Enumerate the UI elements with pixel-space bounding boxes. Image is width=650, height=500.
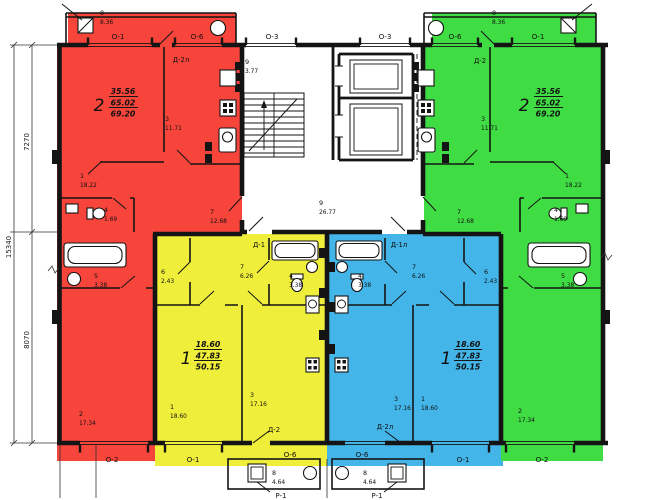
door-label: Д-1л bbox=[391, 241, 407, 249]
balcony-vent-circle bbox=[211, 21, 226, 36]
apt-total-area: 65.02 bbox=[111, 99, 136, 108]
room-area: 17.16 bbox=[394, 406, 411, 412]
room-area: 8.36 bbox=[492, 20, 505, 26]
counter-sink-icon bbox=[306, 296, 319, 313]
window-label: О-3 bbox=[379, 32, 392, 41]
room-num: 2 bbox=[79, 410, 83, 418]
room-num: 1 bbox=[565, 172, 569, 180]
porch-panel-label: Р-1 bbox=[372, 492, 383, 500]
apt-living-area: 35.56 bbox=[536, 87, 561, 96]
window-label: О-1 bbox=[532, 32, 545, 41]
room-num: 4 bbox=[358, 272, 362, 280]
room-num: 1 bbox=[170, 403, 174, 411]
floor-plan-canvas: 7270 8070 15340 О-1 О-6 О-3 О-3 О-6 О-1 … bbox=[0, 0, 650, 500]
room-num: 1 bbox=[80, 172, 84, 180]
sink-icon bbox=[66, 204, 78, 213]
door-label: Д-2л bbox=[173, 56, 189, 64]
apt-total-area: 47.83 bbox=[196, 352, 221, 361]
room-area: 12.68 bbox=[457, 219, 474, 225]
window-label: О-3 bbox=[266, 32, 279, 41]
room-area: 1.69 bbox=[554, 217, 567, 223]
room-area: 8.36 bbox=[100, 20, 113, 26]
red-kitchen-fixtures bbox=[219, 70, 236, 152]
apartment-highlights bbox=[57, 13, 603, 466]
porch-num: 8 bbox=[363, 469, 367, 477]
room-area: 2.43 bbox=[484, 279, 497, 285]
room-area: 18.22 bbox=[80, 183, 97, 189]
room-num: 1 bbox=[421, 395, 425, 403]
apt-total-area: 47.83 bbox=[456, 352, 481, 361]
room-area: 17.34 bbox=[518, 418, 535, 424]
room-area: 17.16 bbox=[250, 402, 267, 408]
room-area: 2.43 bbox=[161, 279, 174, 285]
room-num: 5 bbox=[94, 272, 98, 280]
core-labels: 9 3.77 9 26.77 bbox=[245, 58, 336, 216]
floor-plan-page: 7270 8070 15340 О-1 О-6 О-3 О-3 О-6 О-1 … bbox=[0, 0, 650, 500]
highlight-green-lower bbox=[501, 234, 603, 461]
sink-icon bbox=[68, 273, 81, 286]
apt-full-area: 50.15 bbox=[456, 363, 481, 372]
apt-full-area: 69.20 bbox=[536, 110, 561, 119]
apt-number: 1 bbox=[441, 349, 452, 369]
dim-left-total: 15340 bbox=[5, 236, 13, 258]
room-num: 7 bbox=[210, 208, 214, 216]
counter-sink-icon bbox=[335, 296, 348, 313]
window-label: О-1 bbox=[187, 455, 200, 464]
apt-total-area: 65.02 bbox=[536, 99, 561, 108]
door-label: Д-2 bbox=[268, 426, 280, 434]
room-area: 6.26 bbox=[412, 274, 425, 280]
window-label: О-1 bbox=[112, 32, 125, 41]
fridge-icon bbox=[418, 70, 434, 86]
corridor-area: 26.77 bbox=[319, 210, 336, 216]
room-area: 6.26 bbox=[240, 274, 253, 280]
sink-icon bbox=[307, 262, 318, 273]
green-kitchen-fixtures bbox=[418, 70, 435, 152]
stove-icon bbox=[418, 100, 434, 116]
room-area: 18.60 bbox=[421, 406, 438, 412]
window-label: О-2 bbox=[536, 455, 549, 464]
room-num: 7 bbox=[240, 263, 244, 271]
sink-icon bbox=[576, 204, 588, 213]
balcony-vent-circle bbox=[429, 21, 444, 36]
window-label: О-6 bbox=[191, 32, 204, 41]
room-num: 3 bbox=[481, 115, 485, 123]
door-label: Д-1 bbox=[253, 241, 265, 249]
sink-icon bbox=[574, 273, 587, 286]
apt-number: 2 bbox=[94, 96, 105, 116]
room-area: 18.60 bbox=[170, 414, 187, 420]
apt-number: 2 bbox=[519, 96, 530, 116]
porch-vent-circle bbox=[304, 467, 317, 480]
window-label: О-1 bbox=[457, 455, 470, 464]
apt-living-area: 35.56 bbox=[111, 87, 136, 96]
room-area: 11.71 bbox=[165, 126, 182, 132]
room-area: 11.71 bbox=[481, 126, 498, 132]
door-label: Д-2 bbox=[474, 57, 486, 65]
porch-area: 4.64 bbox=[272, 480, 285, 486]
stove-icon bbox=[306, 358, 319, 372]
stair-area: 3.77 bbox=[245, 69, 258, 75]
room-num: 4 bbox=[104, 206, 108, 214]
window-label: О-6 bbox=[284, 450, 297, 459]
door-label: Д-2л bbox=[377, 423, 393, 431]
room-num: 2 bbox=[518, 407, 522, 415]
room-area: 3.38 bbox=[94, 283, 107, 289]
porch-num: 8 bbox=[272, 469, 276, 477]
porch-area: 4.64 bbox=[363, 480, 376, 486]
elevator-cab-1 bbox=[350, 60, 402, 93]
apt-living-area: 18.60 bbox=[196, 340, 221, 349]
porch-panel-label: Р-1 bbox=[276, 492, 287, 500]
room-num: 8 bbox=[100, 9, 104, 17]
apt-living-area: 18.60 bbox=[456, 340, 481, 349]
window-label: О-2 bbox=[106, 455, 119, 464]
stove-icon bbox=[335, 358, 348, 372]
room-num: 5 bbox=[561, 272, 565, 280]
apt-full-area: 50.15 bbox=[196, 363, 221, 372]
room-num: 3 bbox=[394, 395, 398, 403]
apt-number: 1 bbox=[181, 349, 192, 369]
highlight-red-body bbox=[57, 45, 242, 234]
fridge-icon bbox=[220, 70, 236, 86]
room-area: 3.38 bbox=[289, 283, 302, 289]
room-num: 4 bbox=[289, 272, 293, 280]
room-num: 7 bbox=[457, 208, 461, 216]
elevators-icon bbox=[335, 54, 417, 160]
dim-left-bottom: 8070 bbox=[23, 331, 31, 349]
room-num: 3 bbox=[165, 115, 169, 123]
room-area: 18.22 bbox=[565, 183, 582, 189]
room-area: 3.38 bbox=[358, 283, 371, 289]
room-area: 3.38 bbox=[561, 283, 574, 289]
room-num: 6 bbox=[161, 268, 165, 276]
room-num: 6 bbox=[484, 268, 488, 276]
corridor-num: 9 bbox=[319, 199, 323, 207]
room-area: 12.68 bbox=[210, 219, 227, 225]
sink-icon bbox=[337, 262, 348, 273]
toilet-icon bbox=[87, 208, 93, 219]
window-label: О-6 bbox=[449, 32, 462, 41]
stairs-icon bbox=[244, 45, 333, 160]
elevator-cab-2 bbox=[350, 104, 402, 155]
highlight-red-lower bbox=[57, 234, 155, 461]
room-num: 4 bbox=[554, 206, 558, 214]
window-label: О-6 bbox=[356, 450, 369, 459]
room-num: 7 bbox=[412, 263, 416, 271]
room-area: 17.34 bbox=[79, 421, 96, 427]
room-num: 8 bbox=[492, 9, 496, 17]
room-num: 3 bbox=[250, 391, 254, 399]
stove-icon bbox=[220, 100, 236, 116]
dim-left-top: 7270 bbox=[23, 133, 31, 151]
porch-vent-circle bbox=[336, 467, 349, 480]
stair-num: 9 bbox=[245, 58, 249, 66]
room-area: 1.69 bbox=[104, 217, 117, 223]
apt-full-area: 69.20 bbox=[111, 110, 136, 119]
